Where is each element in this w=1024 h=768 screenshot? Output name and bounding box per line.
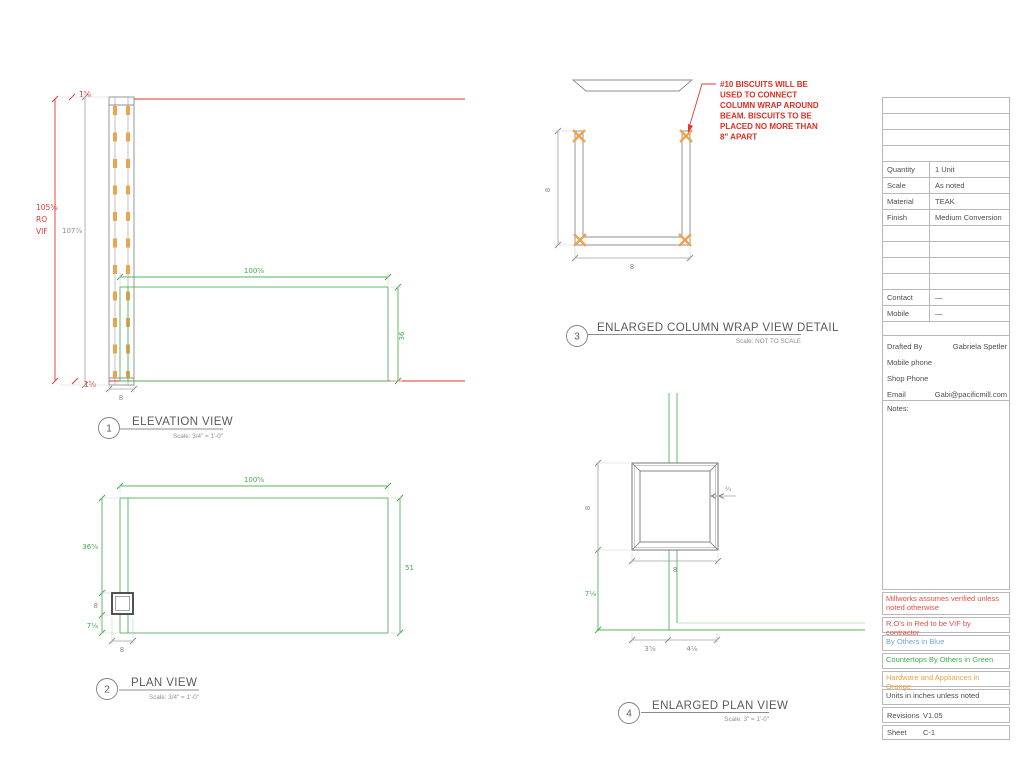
column-wrap-detail-view: 8 8 #10 BISCUITS WILL BE USED TO CONNECT…	[544, 80, 839, 347]
biscuit-x-marks	[573, 130, 692, 246]
plan-view: 100⅝ 36⅝ 8 7⅛ 51 8 2 P	[82, 476, 414, 701]
dim-counter-width: 100⅝	[244, 267, 264, 275]
title-block-empty-row	[882, 273, 1010, 290]
spec-value: TEAK	[930, 194, 1009, 209]
wrap-cap-board	[573, 80, 692, 91]
dim-wrap-width: 8	[630, 263, 634, 271]
view-scale: Scale: 3" = 1'-0"	[724, 716, 769, 723]
dim-counter-overhang: 7⅛	[585, 590, 596, 598]
dim-offset-left: 3⅝	[644, 645, 655, 653]
sheet-row: Sheet C-1	[882, 725, 1010, 740]
view-title-enlarged-plan: ENLARGED PLAN VIEW	[652, 700, 788, 712]
spec-row-scale: Scale As noted	[882, 177, 1010, 194]
dim-plan-depth: 51	[405, 564, 414, 572]
email-value: Gabi@pacificmill.com	[935, 390, 1007, 399]
dim-column-width: 8	[119, 394, 123, 402]
drafted-by-value: Gabriela Spetler	[953, 342, 1007, 351]
spec-row-finish: Finish Medium Conversion	[882, 209, 1010, 226]
svg-text:PLACED NO MORE THAN: PLACED NO MORE THAN	[720, 122, 818, 131]
view-number: 4	[626, 709, 632, 720]
contact-row: Contact —	[882, 289, 1010, 306]
countertop-elevation	[120, 287, 388, 381]
dim-wrap-plan-width: 8	[673, 566, 677, 574]
view-scale: Scale: 3/4" = 1'-0"	[173, 433, 223, 440]
legend-countertops-green: Countertops By Others in Green	[882, 653, 1010, 669]
view-scale: Scale: 3/4" = 1'-0"	[149, 694, 199, 701]
mobile-row: Mobile —	[882, 305, 1010, 322]
svg-text:#10 BISCUITS WILL BE: #10 BISCUITS WILL BE	[720, 80, 809, 89]
dim-ro-height: 105⅝	[36, 203, 58, 212]
drafted-by-row: Drafted By Gabriela Spetler	[887, 338, 1007, 354]
title-block-empty-row	[882, 321, 1010, 336]
mobile-phone-row: Mobile phone	[887, 354, 1007, 370]
spec-label: Quantity	[883, 162, 930, 177]
dim-plan-left-upper: 36⅝	[82, 543, 98, 551]
mobile-phone-label: Mobile phone	[887, 358, 932, 367]
title-block: Quantity 1 Unit Scale As noted Material …	[882, 98, 1010, 740]
contact-label: Contact	[883, 290, 930, 305]
drafted-by-label: Drafted By	[887, 342, 922, 351]
view-number: 3	[574, 332, 580, 343]
svg-text:8" APART: 8" APART	[720, 133, 757, 142]
notes-box: Notes:	[882, 400, 1010, 590]
dim-cap-top: 1⅝	[79, 90, 91, 99]
enlarged-plan-view: 8 7⅛ 8 3⅝ 4⅛ ¾ 4 ENLARGED PLAN VIEW	[584, 393, 865, 724]
drawing-sheet: 105⅝ RO VIF 107⅞ 1⅝ 1⅝ 100⅝ 36 8	[0, 0, 1024, 768]
view-title-column-wrap: ENLARGED COLUMN WRAP VIEW DETAIL	[597, 322, 839, 334]
contact-value: —	[930, 290, 1009, 305]
countertop-plan	[120, 498, 388, 633]
drafted-by-block: Drafted By Gabriela Spetler Mobile phone…	[882, 335, 1010, 401]
legend-units: Units in inches unless noted	[882, 689, 1010, 705]
dim-cap-bottom: 1⅝	[84, 380, 96, 389]
dim-offset-right: 4⅛	[686, 645, 697, 653]
legend-millworks: Millworks assumes verified unless noted …	[882, 592, 1010, 615]
revisions-row: Revisions V1.05	[882, 707, 1010, 723]
dim-plan-column: 8	[94, 602, 98, 610]
shop-phone-row: Shop Phone	[887, 370, 1007, 386]
shop-phone-label: Shop Phone	[887, 374, 928, 383]
mobile-label: Mobile	[883, 306, 930, 321]
spec-row-material: Material TEAK	[882, 193, 1010, 210]
dim-overall-height: 107⅞	[62, 227, 82, 235]
svg-text:COLUMN WRAP AROUND: COLUMN WRAP AROUND	[720, 101, 819, 110]
dim-counter-height: 36	[398, 331, 406, 340]
note-leader-line	[688, 84, 716, 131]
view-scale: Scale: NOT TO SCALE	[736, 338, 801, 345]
elevation-view: 105⅝ RO VIF 107⅞ 1⅝ 1⅝ 100⅝ 36 8	[36, 90, 465, 440]
revisions-label: Revisions	[887, 711, 923, 720]
title-block-empty-row	[882, 257, 1010, 274]
view-number: 2	[104, 685, 110, 696]
notes-label: Notes:	[887, 404, 909, 413]
dim-wrap-thickness: ¾	[725, 485, 732, 493]
svg-text:USED TO CONNECT: USED TO CONNECT	[720, 91, 797, 100]
dim-plan-column-width: 8	[120, 646, 124, 654]
spec-label: Finish	[883, 210, 930, 225]
email-label: Email	[887, 390, 906, 399]
legend-ro-red: R.O's in Red to be VIF by contractor	[882, 617, 1010, 633]
title-block-empty-row	[882, 225, 1010, 242]
dim-ro-label: RO	[36, 215, 47, 224]
view-number: 1	[106, 424, 112, 435]
title-block-empty-row	[882, 241, 1010, 258]
legend-hardware-orange: Hardware and Appliances in Orange	[882, 671, 1010, 687]
title-block-empty-row	[882, 97, 1010, 114]
legend-by-others-blue: By Others in Blue	[882, 635, 1010, 651]
spec-value: Medium Conversion	[930, 210, 1009, 225]
sheet-value: C-1	[923, 728, 935, 737]
column-wrap-plan	[632, 463, 718, 550]
dim-vif-label: VIF	[36, 227, 48, 236]
title-block-empty-row	[882, 129, 1010, 146]
column-elevation	[109, 97, 134, 385]
title-block-empty-row	[882, 113, 1010, 130]
view-title-elevation: ELEVATION VIEW	[132, 416, 233, 428]
dim-wrap-plan-height: 8	[584, 506, 592, 510]
spec-value: 1 Unit	[930, 162, 1009, 177]
dim-wrap-height: 8	[544, 188, 552, 192]
svg-text:BEAM. BISCUITS TO BE: BEAM. BISCUITS TO BE	[720, 112, 813, 121]
spec-label: Material	[883, 194, 930, 209]
dim-plan-width: 100⅝	[244, 476, 264, 484]
biscuit-note: #10 BISCUITS WILL BE USED TO CONNECT COL…	[720, 80, 819, 142]
sheet-label: Sheet	[887, 728, 923, 737]
spec-label: Scale	[883, 178, 930, 193]
title-block-empty-row	[882, 145, 1010, 162]
dim-plan-left-lower: 7⅛	[87, 622, 98, 630]
mobile-value: —	[930, 306, 1009, 321]
revisions-value: V1.05	[923, 711, 943, 720]
spec-value: As noted	[930, 178, 1009, 193]
spec-row-quantity: Quantity 1 Unit	[882, 161, 1010, 178]
view-title-plan: PLAN VIEW	[131, 677, 197, 689]
